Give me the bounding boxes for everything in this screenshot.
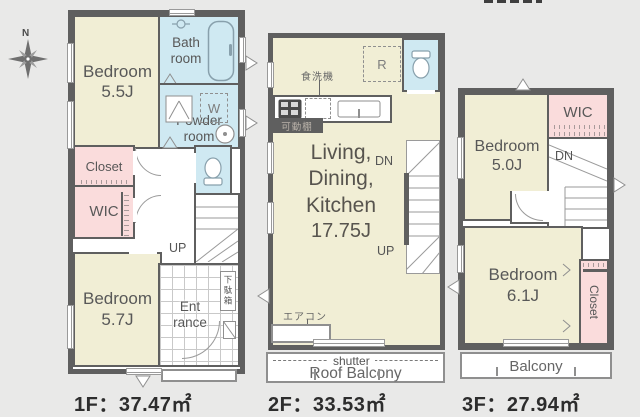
- room-name: WIC: [89, 203, 118, 221]
- room-closet-1f: Closet: [73, 145, 135, 189]
- porch-step: [161, 369, 237, 382]
- room-size: 5.0J: [475, 157, 540, 176]
- room-bedroom-5-5j: Bedroom 5.5J: [73, 15, 162, 149]
- room-closet-3f: Closet: [579, 259, 609, 345]
- stair-handrail: [404, 173, 409, 245]
- vent-triangle-icon: [447, 279, 460, 295]
- aircon-label: エアコン: [283, 308, 327, 323]
- leader-line: [319, 80, 320, 96]
- shelf-hatch: [554, 125, 606, 129]
- window: [267, 202, 274, 234]
- shelf-hatch: [583, 263, 607, 267]
- room-entrance: Ent rance 下駄箱: [158, 263, 240, 367]
- window: [267, 62, 274, 88]
- movable-shelf-badge: 可動棚: [271, 118, 323, 133]
- room-name: Dining,: [281, 166, 401, 192]
- room-toilet-2f: [402, 38, 440, 92]
- staircase-3f: DN: [547, 137, 609, 229]
- vent-triangle-icon: [245, 55, 258, 71]
- vent-triangle-icon: [135, 375, 151, 388]
- washing-machine-box: W: [200, 93, 228, 123]
- vanity-icon: [165, 95, 193, 123]
- floor-plan-1f: Bedroom 5.5J Bath room Powder room: [68, 10, 245, 374]
- room-name: Bedroom: [83, 289, 152, 309]
- stairs-up-label: UP: [377, 244, 394, 258]
- staircase-2f: [406, 140, 440, 274]
- railing-tick: [496, 367, 498, 376]
- door-gap: [129, 250, 157, 254]
- hanger-pole: [121, 192, 123, 236]
- room-name: WIC: [563, 104, 592, 122]
- roof-balcony-label: Roof Balcony: [268, 365, 443, 383]
- refrigerator-label: R: [377, 57, 386, 72]
- balcony-label: Balcony: [462, 358, 610, 375]
- room-size: 5.7J: [83, 310, 152, 330]
- door-gap: [133, 151, 137, 175]
- window: [457, 137, 464, 179]
- shelf-hatch: [554, 132, 606, 136]
- washer-label: W: [208, 101, 220, 116]
- room-name: Bedroom: [489, 265, 558, 285]
- room-wic-3f: WIC: [547, 93, 609, 141]
- door-gap: [407, 90, 435, 94]
- refrigerator-box: R: [363, 46, 401, 82]
- room-name: Bedroom: [83, 62, 152, 82]
- stairs-up-label: UP: [169, 241, 186, 255]
- window: [67, 101, 74, 149]
- basin-icon: [214, 123, 236, 145]
- window: [126, 368, 162, 375]
- window: [169, 9, 195, 16]
- window: [267, 142, 274, 174]
- floor-plan-2f: R 食洗機 可動棚 Living, Dining, Kitchen 17.75J: [268, 33, 445, 350]
- window: [67, 43, 74, 83]
- shelf-hatch: [124, 192, 129, 236]
- room-name: Bath: [171, 35, 202, 51]
- stairs-icon: [196, 196, 238, 262]
- vent-triangle-icon: [613, 177, 626, 193]
- room-size: 5.5J: [83, 82, 152, 102]
- room-powder-room: Powder room W: [158, 83, 240, 149]
- compass-rose: N: [6, 28, 50, 86]
- vent-triangle-icon: [245, 115, 258, 131]
- faucet-icon: [172, 18, 190, 30]
- floorplan-page: { "compass": { "north": "N" }, "colors":…: [0, 0, 640, 416]
- room-size: 17.75J: [281, 219, 401, 244]
- kitchen-sink-icon: [337, 100, 381, 118]
- sliding-door: [313, 339, 385, 347]
- room-toilet-1f: [194, 145, 232, 197]
- window: [457, 245, 464, 273]
- room-wic-1f: WIC: [73, 185, 135, 239]
- cropped-text-fragment: [484, 0, 542, 3]
- dishwasher-label: 食洗機: [301, 68, 334, 83]
- folding-door-icon: [561, 263, 572, 277]
- vent-triangle-icon: [515, 78, 531, 91]
- shoe-cabinet-label: 下駄箱: [220, 271, 236, 311]
- door-swing-arc: [135, 195, 161, 223]
- bathtub-icon: [207, 20, 235, 82]
- dishwasher-box: [305, 98, 331, 119]
- room-bathroom: Bath room: [158, 15, 240, 87]
- floor-area-label-3f: 3F：27.94㎡: [462, 388, 580, 417]
- toilet-icon: [410, 50, 432, 80]
- window: [67, 305, 74, 349]
- railing-tick: [378, 369, 380, 380]
- railing-tick: [574, 367, 576, 376]
- room-size: 6.1J: [489, 286, 558, 306]
- folding-door-icon: [162, 136, 178, 149]
- floor-area-label-2f: 2F：33.53㎡: [268, 388, 386, 417]
- vent-triangle-icon: [257, 288, 270, 304]
- stairs-down-label: DN: [375, 154, 393, 168]
- stairs-down-label: DN: [555, 149, 573, 163]
- door-gap: [192, 153, 196, 183]
- stove-icon: [278, 99, 302, 119]
- hanger-pole: [583, 269, 607, 272]
- compass-north-label: N: [22, 28, 29, 39]
- door-gap: [133, 198, 137, 222]
- floor-area-label-1f: 1F：37.47㎡: [74, 388, 192, 417]
- room-name: Closet: [86, 159, 123, 174]
- room-bedroom-5-7j: Bedroom 5.7J: [73, 252, 162, 367]
- door-swing-arc: [182, 321, 220, 359]
- balcony-3f: Balcony: [460, 352, 612, 379]
- floor-plan-3f: Bedroom 5.0J WIC DN Bedroom 6.1J: [458, 88, 614, 350]
- railing-tick: [314, 369, 316, 380]
- shelf-hatch: [81, 180, 129, 184]
- stairs-icon: [406, 140, 440, 274]
- compass-rose-icon: [8, 39, 48, 79]
- shoe-box-icon: [223, 321, 236, 339]
- door-swing-arc: [135, 148, 161, 176]
- staircase-1f: [194, 193, 240, 265]
- room-name: room: [171, 51, 202, 67]
- room-name: Closet: [587, 285, 601, 319]
- room-name: Ent: [173, 299, 207, 315]
- roof-balcony: shutter Roof Balcony: [266, 352, 445, 383]
- folding-door-icon: [561, 319, 572, 333]
- room-name: Bedroom: [475, 138, 540, 157]
- toilet-icon: [202, 156, 224, 186]
- sliding-door: [503, 339, 569, 347]
- room-name: Kitchen: [281, 193, 401, 219]
